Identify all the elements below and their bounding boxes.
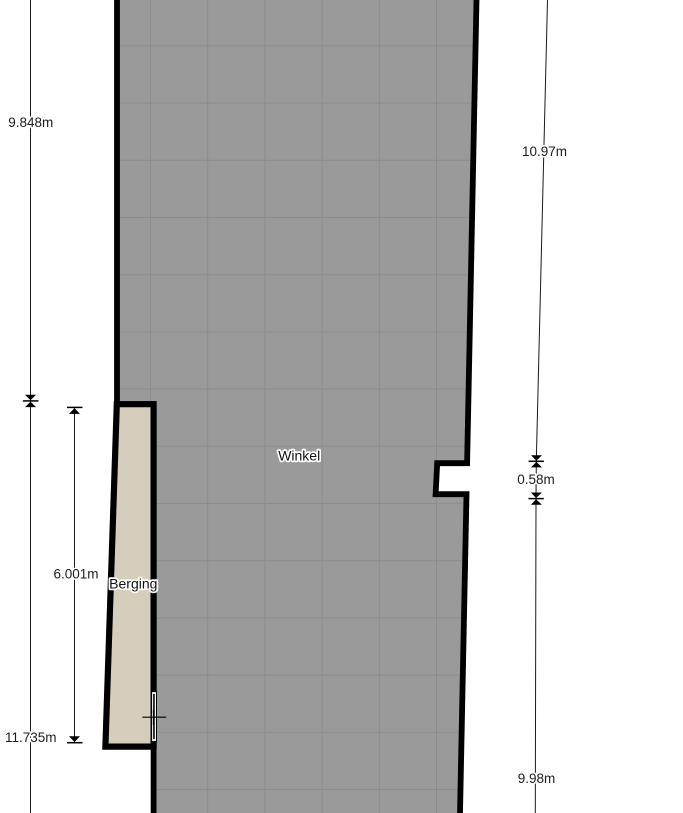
svg-text:6.001m: 6.001m: [53, 567, 98, 582]
svg-text:0.58m: 0.58m: [517, 472, 555, 487]
svg-text:10.97m: 10.97m: [522, 144, 567, 159]
svg-text:11.735m: 11.735m: [5, 730, 57, 745]
svg-text:Berging: Berging: [109, 575, 157, 591]
svg-text:9.848m: 9.848m: [8, 115, 53, 130]
svg-text:9.98m: 9.98m: [518, 771, 556, 786]
svg-text:Winkel: Winkel: [278, 448, 320, 464]
